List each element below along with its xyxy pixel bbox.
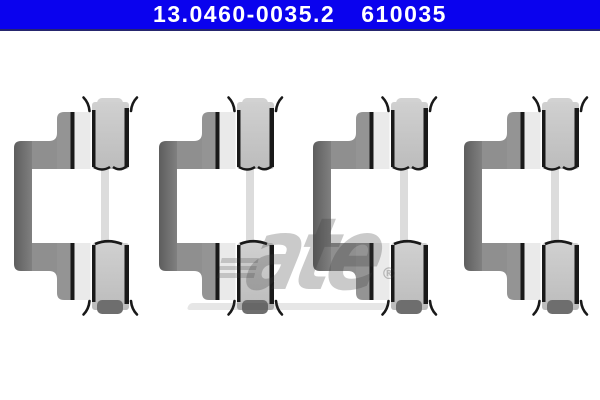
product-card: 13.0460-0035.2 610035 [0, 0, 600, 400]
retaining-clip-2 [159, 98, 282, 315]
clips-illustration [0, 0, 600, 400]
retaining-clip-3 [313, 98, 436, 315]
product-image-area: ate ® [0, 0, 600, 400]
retaining-clip-4 [464, 98, 587, 315]
retaining-clip-1 [14, 98, 137, 315]
